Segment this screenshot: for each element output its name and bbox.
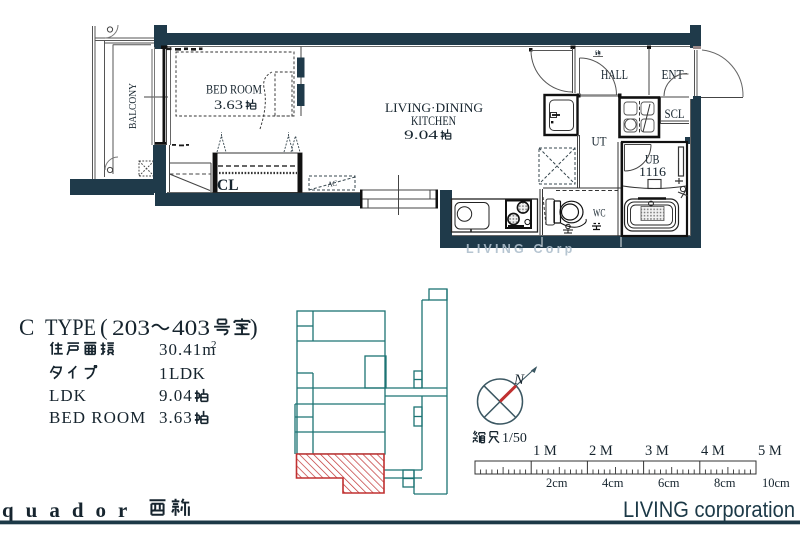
svg-text:2: 2 [211,339,217,351]
svg-text:403: 403 [172,315,210,340]
svg-text:CL: CL [217,177,239,194]
svg-text:BALCONY: BALCONY [127,83,139,129]
svg-text:6cm: 6cm [658,476,680,490]
svg-text:203: 203 [112,315,150,340]
svg-text:3.63: 3.63 [159,408,193,427]
svg-text:WC: WC [593,206,606,220]
svg-text:2cm: 2cm [546,476,568,490]
svg-text:HALL: HALL [601,67,628,82]
svg-text:1 M: 1 M [533,443,557,459]
svg-text:9.04: 9.04 [404,127,439,142]
svg-text:(: ( [100,315,108,340]
svg-text:2 M: 2 M [589,443,613,459]
svg-text:LDK: LDK [169,364,206,383]
svg-text:9.04: 9.04 [159,386,193,405]
svg-text:5 M: 5 M [758,443,782,459]
svg-text:LDK: LDK [49,386,87,405]
svg-text:3.63: 3.63 [214,97,243,112]
svg-text:TYPE: TYPE [45,315,96,340]
svg-text:30.41m: 30.41m [159,340,216,359]
svg-text:SCL: SCL [665,106,685,121]
svg-text:1: 1 [159,364,168,383]
svg-text:1116: 1116 [639,164,667,179]
svg-text:LIVING·DINING: LIVING·DINING [385,101,483,115]
svg-text:KITCHEN: KITCHEN [411,114,456,128]
svg-text:LIVING Corp: LIVING Corp [466,242,576,256]
svg-text:quador: quador [2,498,139,522]
svg-text:BED ROOM: BED ROOM [206,83,262,97]
svg-text:BED ROOM: BED ROOM [49,408,146,427]
svg-text:LIVING corporation: LIVING corporation [623,497,795,522]
svg-text:4 M: 4 M [701,443,725,459]
svg-text:3 M: 3 M [645,443,669,459]
svg-text:4cm: 4cm [602,476,624,490]
svg-text:10cm: 10cm [762,476,790,490]
svg-text:N: N [513,372,525,388]
svg-text:UT: UT [592,134,607,149]
svg-text:): ) [250,315,258,340]
svg-text:1/50: 1/50 [502,431,527,446]
svg-text:8cm: 8cm [714,476,736,490]
svg-text:C: C [19,315,34,340]
